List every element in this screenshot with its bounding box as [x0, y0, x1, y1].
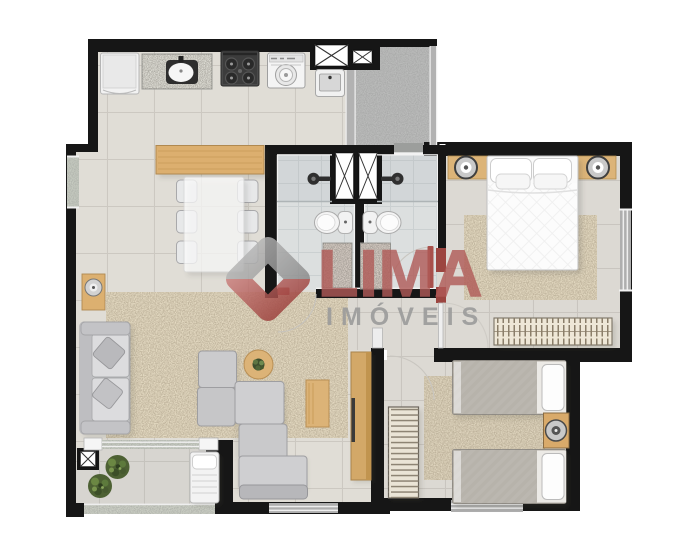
svg-text:IMÓVEIS: IMÓVEIS: [326, 301, 486, 331]
svg-text:LIMA: LIMA: [318, 236, 483, 310]
